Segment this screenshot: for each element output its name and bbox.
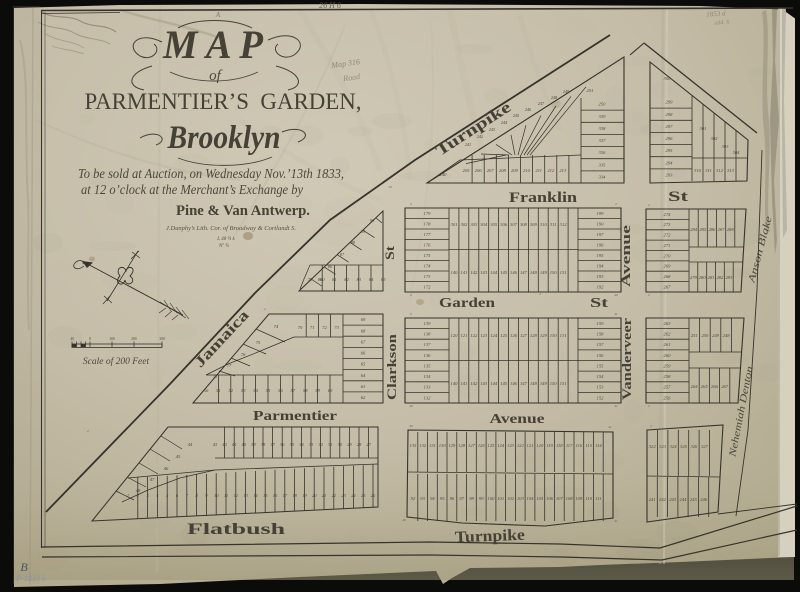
svg-text:176: 176: [424, 242, 432, 247]
svg-text:40: 40: [409, 404, 413, 408]
svg-text:109: 109: [575, 496, 583, 501]
svg-text:84: 84: [369, 277, 374, 282]
svg-text:206: 206: [475, 168, 483, 173]
svg-text:265: 265: [701, 384, 709, 389]
svg-text:262: 262: [664, 332, 672, 337]
svg-text:141: 141: [460, 270, 467, 275]
svg-text:28: 28: [357, 442, 362, 447]
svg-text:122: 122: [517, 443, 525, 448]
svg-text:249: 249: [712, 333, 720, 338]
svg-text:267: 267: [664, 284, 672, 289]
svg-text:199: 199: [597, 211, 605, 216]
svg-text:76: 76: [241, 352, 246, 357]
svg-text:47: 47: [150, 477, 155, 482]
svg-text:260: 260: [664, 353, 672, 358]
svg-text:Avenue: Avenue: [490, 412, 545, 427]
svg-text:95: 95: [440, 496, 445, 501]
svg-text:245: 245: [690, 497, 698, 502]
svg-text:63: 63: [361, 384, 366, 389]
svg-text:2: 2: [615, 202, 617, 206]
svg-text:143: 143: [480, 270, 488, 275]
svg-text:298: 298: [666, 112, 674, 117]
svg-text:309: 309: [530, 222, 538, 227]
svg-text:193: 193: [597, 274, 605, 279]
svg-text:35: 35: [290, 442, 295, 447]
svg-text:B: B: [20, 560, 28, 574]
svg-text:157: 157: [597, 342, 605, 347]
svg-text:103: 103: [517, 496, 525, 501]
svg-text:46: 46: [164, 466, 169, 471]
svg-text:126: 126: [510, 333, 518, 338]
svg-text:243: 243: [669, 497, 677, 502]
svg-text:267: 267: [721, 384, 729, 389]
svg-text:127: 127: [468, 443, 476, 448]
svg-text:42: 42: [222, 442, 227, 447]
svg-text:244: 244: [501, 120, 507, 125]
svg-text:140: 140: [451, 270, 459, 275]
svg-text:37: 37: [270, 442, 275, 447]
svg-text:212: 212: [547, 168, 555, 173]
svg-text:242: 242: [659, 497, 667, 502]
svg-text:323: 323: [659, 444, 667, 449]
svg-text:31: 31: [328, 442, 333, 447]
svg-text:Brooklyn: Brooklyn: [167, 120, 281, 156]
svg-text:301: 301: [451, 222, 458, 227]
svg-text:243: 243: [489, 127, 495, 132]
svg-text:70: 70: [298, 325, 303, 330]
svg-text:119: 119: [546, 443, 553, 448]
svg-text:200: 200: [131, 337, 137, 341]
svg-text:311: 311: [550, 222, 557, 227]
svg-text:135: 135: [424, 363, 432, 368]
svg-text:246: 246: [525, 107, 532, 112]
svg-text:11: 11: [224, 493, 228, 498]
svg-text:257: 257: [664, 385, 672, 390]
svg-text:130: 130: [550, 333, 558, 338]
svg-text:St: St: [383, 245, 397, 260]
svg-text:58: 58: [303, 388, 308, 393]
svg-text:125: 125: [488, 443, 496, 448]
svg-text:2: 2: [410, 293, 412, 297]
svg-text:59: 59: [315, 388, 320, 393]
svg-text:72: 72: [322, 325, 327, 330]
svg-text:106: 106: [546, 496, 554, 501]
svg-text:209: 209: [511, 168, 519, 173]
svg-text:124: 124: [490, 333, 498, 338]
svg-text:213: 213: [559, 168, 567, 173]
svg-text:152: 152: [597, 395, 605, 400]
svg-text:124: 124: [497, 443, 505, 448]
svg-text:65: 65: [361, 362, 366, 367]
svg-text:41: 41: [614, 519, 618, 523]
svg-text:261: 261: [664, 342, 671, 347]
svg-text:327: 327: [701, 444, 709, 449]
svg-text:144: 144: [490, 381, 498, 386]
svg-text:303: 303: [470, 222, 478, 227]
svg-text:132: 132: [424, 395, 432, 400]
svg-text:153: 153: [597, 385, 605, 390]
svg-text:131: 131: [560, 333, 567, 338]
svg-text:Pine & Van Antwerp.: Pine & Van Antwerp.: [176, 203, 310, 219]
svg-text:144: 144: [490, 270, 498, 275]
svg-text:310: 310: [540, 222, 548, 227]
svg-text:41: 41: [608, 425, 612, 429]
svg-text:304: 304: [733, 150, 741, 155]
svg-text:175: 175: [424, 253, 432, 258]
svg-text:75: 75: [256, 340, 261, 345]
svg-text:Turnpike: Turnpike: [455, 527, 526, 546]
svg-text:194: 194: [597, 263, 605, 268]
svg-text:280: 280: [699, 275, 707, 280]
svg-text:45: 45: [176, 454, 181, 459]
svg-text:250: 250: [599, 102, 607, 107]
svg-text:338: 338: [599, 126, 607, 131]
svg-text:307: 307: [510, 222, 518, 227]
svg-text:174: 174: [424, 263, 432, 268]
svg-text:L 48 ¾ k: L 48 ¾ k: [216, 237, 235, 242]
svg-text:40: 40: [242, 442, 247, 447]
svg-text:172: 172: [424, 284, 432, 289]
svg-text:98: 98: [469, 496, 474, 501]
svg-text:334: 334: [599, 175, 607, 180]
svg-text:155: 155: [597, 363, 605, 368]
svg-text:2: 2: [539, 292, 541, 296]
svg-text:PARMENTIER’S GARDEN,: PARMENTIER’S GARDEN,: [85, 89, 362, 114]
svg-text:100: 100: [488, 496, 496, 501]
svg-text:149: 149: [540, 381, 548, 386]
svg-text:210: 210: [523, 168, 531, 173]
svg-text:266: 266: [711, 384, 719, 389]
svg-text:248: 248: [551, 95, 558, 100]
svg-text:Garden: Garden: [439, 296, 495, 311]
svg-text:99: 99: [479, 496, 484, 501]
svg-text:149: 149: [540, 270, 548, 275]
svg-text:295: 295: [666, 148, 674, 153]
svg-text:178: 178: [424, 221, 432, 226]
svg-text:Flatbush: Flatbush: [187, 521, 285, 538]
svg-text:125: 125: [500, 333, 508, 338]
svg-text:137: 137: [424, 342, 432, 347]
svg-text:123: 123: [480, 333, 488, 338]
svg-text:41: 41: [614, 404, 618, 408]
svg-text:36: 36: [280, 442, 285, 447]
svg-text:136: 136: [424, 353, 432, 358]
svg-text:54: 54: [253, 388, 258, 393]
svg-text:121: 121: [527, 443, 534, 448]
svg-text:40: 40: [614, 293, 618, 297]
svg-text:147: 147: [520, 381, 528, 386]
svg-text:2: 2: [648, 203, 650, 207]
svg-text:148: 148: [530, 381, 538, 386]
svg-text:251: 251: [587, 88, 594, 93]
svg-text:51: 51: [216, 388, 221, 393]
svg-text:259: 259: [664, 363, 672, 368]
svg-text:St: St: [590, 296, 608, 311]
svg-text:312: 312: [716, 168, 724, 173]
svg-text:41: 41: [232, 442, 237, 447]
svg-text:68: 68: [361, 328, 366, 333]
svg-text:150: 150: [550, 381, 558, 386]
svg-text:128: 128: [530, 333, 538, 338]
svg-text:133: 133: [424, 385, 432, 390]
svg-text:310: 310: [694, 168, 702, 173]
svg-text:147: 147: [520, 270, 528, 275]
svg-text:256: 256: [664, 395, 672, 400]
svg-text:127: 127: [520, 333, 528, 338]
svg-text:250: 250: [701, 333, 709, 338]
svg-text:120: 120: [536, 443, 544, 448]
svg-text:335: 335: [599, 162, 607, 167]
svg-text:296: 296: [666, 136, 674, 141]
svg-text:273: 273: [664, 222, 672, 227]
svg-text:249: 249: [563, 89, 570, 94]
svg-text:131: 131: [429, 443, 436, 448]
svg-text:247: 247: [538, 101, 545, 106]
svg-text:134: 134: [424, 374, 432, 379]
svg-text:P-1833 b: P-1833 b: [15, 574, 46, 583]
svg-text:268: 268: [664, 274, 672, 279]
svg-text:118: 118: [556, 443, 563, 448]
svg-text:104: 104: [527, 496, 535, 501]
svg-text:0: 0: [89, 337, 91, 341]
svg-text:132: 132: [419, 443, 427, 448]
svg-text:304: 304: [480, 222, 488, 227]
svg-text:286: 286: [708, 227, 716, 232]
svg-text:143: 143: [480, 381, 488, 386]
svg-text:73: 73: [334, 325, 339, 330]
svg-text:2: 2: [648, 404, 650, 408]
svg-text:2: 2: [410, 312, 412, 316]
svg-text:2: 2: [264, 307, 266, 311]
svg-text:2: 2: [87, 429, 89, 433]
svg-text:154: 154: [597, 374, 605, 379]
svg-text:52: 52: [229, 388, 234, 393]
svg-text:207: 207: [487, 168, 495, 173]
svg-text:81: 81: [332, 277, 337, 282]
svg-text:116: 116: [576, 443, 583, 448]
svg-text:2: 2: [410, 202, 412, 206]
svg-text:288: 288: [727, 227, 735, 232]
svg-text:269: 269: [664, 264, 672, 269]
svg-text:197: 197: [597, 232, 605, 237]
svg-text:41: 41: [614, 312, 618, 316]
svg-text:303: 303: [722, 144, 730, 149]
svg-text:101: 101: [497, 496, 504, 501]
svg-text:336: 336: [599, 150, 607, 155]
svg-text:39: 39: [251, 442, 256, 447]
svg-text:150: 150: [550, 270, 558, 275]
svg-text:M A P: M A P: [162, 22, 264, 67]
svg-text:145: 145: [500, 381, 508, 386]
svg-text:67: 67: [361, 339, 366, 344]
svg-text:133: 133: [409, 443, 417, 448]
svg-text:283: 283: [725, 275, 733, 280]
svg-text:32: 32: [318, 442, 323, 447]
svg-text:Franklin: Franklin: [509, 190, 578, 206]
svg-text:30: 30: [338, 442, 343, 447]
svg-text:177: 177: [424, 232, 432, 237]
svg-text:156: 156: [597, 353, 605, 358]
svg-text:50: 50: [204, 388, 209, 393]
svg-text:337: 337: [599, 138, 607, 143]
svg-text:110: 110: [585, 496, 592, 501]
svg-text:300: 300: [159, 337, 165, 341]
svg-text:96: 96: [450, 496, 455, 501]
svg-text:83: 83: [357, 277, 362, 282]
svg-text:64: 64: [361, 373, 366, 378]
svg-text:293: 293: [666, 173, 674, 178]
svg-text:141: 141: [460, 381, 467, 386]
svg-text:120: 120: [451, 333, 459, 338]
svg-text:40: 40: [402, 518, 406, 522]
svg-text:71: 71: [310, 325, 315, 330]
svg-text:311: 311: [705, 168, 712, 173]
svg-text:251: 251: [691, 333, 698, 338]
svg-text:158: 158: [597, 332, 605, 337]
svg-text:312: 312: [560, 222, 568, 227]
svg-text:122: 122: [470, 333, 478, 338]
svg-text:94: 94: [430, 496, 435, 501]
svg-text:126: 126: [478, 443, 486, 448]
svg-text:339: 339: [599, 114, 607, 119]
svg-text:294: 294: [666, 160, 674, 165]
svg-text:Nº ¾: Nº ¾: [218, 243, 229, 249]
svg-text:105: 105: [536, 496, 544, 501]
svg-text:2: 2: [650, 424, 652, 428]
svg-text:195: 195: [597, 253, 605, 258]
svg-text:263: 263: [664, 321, 672, 326]
svg-text:121: 121: [460, 333, 467, 338]
svg-text:108: 108: [566, 496, 574, 501]
svg-text:77: 77: [227, 363, 232, 368]
svg-text:43: 43: [213, 442, 218, 447]
svg-text:190: 190: [597, 221, 605, 226]
svg-text:add. 6: add. 6: [714, 19, 729, 26]
svg-text:93: 93: [420, 496, 425, 501]
svg-text:2: 2: [648, 293, 650, 297]
svg-text:264: 264: [691, 384, 699, 389]
svg-text:38: 38: [261, 442, 266, 447]
svg-text:92: 92: [411, 496, 416, 501]
svg-text:272: 272: [664, 233, 672, 238]
svg-text:29: 29: [347, 442, 352, 447]
svg-text:138: 138: [424, 332, 432, 337]
svg-text:56: 56: [278, 388, 283, 393]
svg-text:322: 322: [649, 444, 657, 449]
svg-text:305: 305: [490, 222, 498, 227]
svg-text:53: 53: [241, 388, 246, 393]
svg-text:117: 117: [566, 443, 573, 448]
svg-text:297: 297: [666, 124, 674, 129]
svg-text:To be sold at Auction, on Wedn: To be sold at Auction, on Wednesday Nov.…: [78, 166, 344, 181]
svg-text:97: 97: [459, 496, 464, 501]
svg-text:146: 146: [510, 270, 518, 275]
svg-text:107: 107: [556, 496, 564, 501]
svg-text:44: 44: [188, 442, 193, 447]
svg-text:60: 60: [328, 388, 333, 393]
svg-text:26 H 6: 26 H 6: [319, 1, 341, 10]
svg-text:248: 248: [723, 333, 731, 338]
svg-text:148: 148: [530, 270, 538, 275]
svg-text:66: 66: [361, 351, 366, 356]
svg-text:242: 242: [477, 134, 483, 139]
svg-text:240: 240: [440, 172, 448, 177]
svg-text:208: 208: [499, 168, 507, 173]
svg-text:301: 301: [700, 126, 707, 131]
svg-text:69: 69: [361, 317, 366, 322]
svg-text:245: 245: [513, 113, 519, 118]
svg-text:48: 48: [136, 488, 141, 493]
svg-text:114: 114: [595, 443, 602, 448]
svg-text:33: 33: [309, 442, 314, 447]
svg-text:J.Dunphy’s Lith. Cor. of Broad: J.Dunphy’s Lith. Cor. of Broadway & Cort…: [166, 225, 296, 232]
svg-text:300: 300: [664, 76, 672, 81]
svg-text:284: 284: [690, 227, 698, 232]
svg-text:146: 146: [510, 381, 518, 386]
svg-text:27: 27: [366, 442, 371, 447]
svg-text:279: 279: [690, 275, 698, 280]
svg-text:128: 128: [458, 443, 466, 448]
svg-text:299: 299: [666, 100, 674, 105]
svg-text:55: 55: [266, 388, 271, 393]
svg-text:115: 115: [585, 443, 592, 448]
svg-text:Vanderveer: Vanderveer: [620, 317, 634, 400]
svg-text:302: 302: [711, 136, 719, 141]
svg-text:142: 142: [470, 270, 478, 275]
svg-text:246: 246: [700, 497, 708, 502]
svg-text:Parmentier: Parmentier: [253, 409, 337, 424]
svg-text:142: 142: [470, 381, 478, 386]
svg-text:258: 258: [664, 374, 672, 379]
svg-text:62: 62: [361, 395, 366, 400]
svg-text:21: 21: [322, 493, 326, 498]
svg-text:10: 10: [388, 185, 392, 189]
svg-text:140: 140: [451, 381, 459, 386]
svg-text:313: 313: [727, 168, 735, 173]
svg-text:271: 271: [664, 243, 671, 248]
svg-text:145: 145: [500, 270, 508, 275]
svg-text:308: 308: [520, 222, 528, 227]
svg-text:287: 287: [718, 227, 726, 232]
svg-text:57: 57: [291, 388, 296, 393]
svg-text:St: St: [668, 189, 688, 205]
svg-text:100: 100: [109, 337, 115, 341]
svg-text:325: 325: [680, 444, 688, 449]
svg-text:326: 326: [690, 444, 698, 449]
svg-text:40: 40: [70, 337, 74, 341]
svg-text:241: 241: [649, 497, 656, 502]
svg-text:244: 244: [680, 497, 688, 502]
svg-text:192: 192: [597, 284, 605, 289]
svg-text:196: 196: [597, 242, 605, 247]
svg-text:139: 139: [424, 321, 432, 326]
svg-text:274: 274: [664, 212, 672, 217]
svg-text:40: 40: [409, 424, 413, 428]
svg-text:Clarkson: Clarkson: [385, 334, 399, 400]
svg-text:179: 179: [424, 211, 432, 216]
svg-text:129: 129: [540, 333, 548, 338]
svg-text:285: 285: [699, 227, 707, 232]
svg-text:of: of: [209, 68, 223, 84]
svg-text:324: 324: [670, 444, 678, 449]
svg-text:Scale of 200 Feet: Scale of 200 Feet: [83, 356, 150, 367]
svg-text:102: 102: [507, 496, 515, 501]
svg-text:159: 159: [597, 321, 605, 326]
svg-text:130: 130: [439, 443, 447, 448]
svg-text:129: 129: [448, 443, 456, 448]
svg-text:85: 85: [381, 277, 386, 282]
svg-text:123: 123: [507, 443, 515, 448]
